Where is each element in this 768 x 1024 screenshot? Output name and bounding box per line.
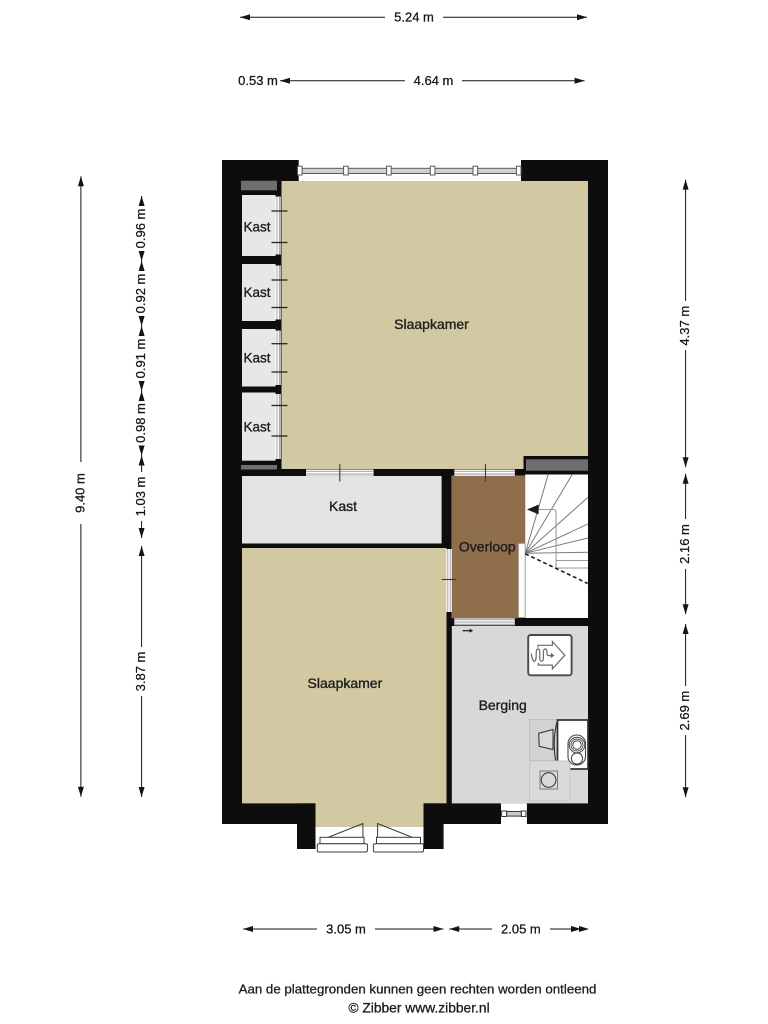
svg-text:3.87 m: 3.87 m bbox=[133, 652, 148, 692]
svg-text:Aan de plattegronden kunnen ge: Aan de plattegronden kunnen geen rechten… bbox=[239, 982, 597, 997]
svg-text:Kast: Kast bbox=[243, 351, 270, 366]
svg-text:0.98 m: 0.98 m bbox=[133, 403, 148, 443]
svg-text:Kast: Kast bbox=[243, 219, 270, 234]
svg-text:Berging: Berging bbox=[479, 697, 527, 713]
svg-text:Kast: Kast bbox=[243, 419, 270, 434]
svg-text:0.53 m: 0.53 m bbox=[238, 73, 278, 88]
svg-text:0.91 m: 0.91 m bbox=[133, 339, 148, 379]
svg-text:© Zibber www.zibber.nl: © Zibber www.zibber.nl bbox=[348, 1000, 489, 1015]
svg-text:2.69 m: 2.69 m bbox=[677, 691, 692, 731]
svg-text:4.64 m: 4.64 m bbox=[414, 73, 454, 88]
svg-text:1.03 m: 1.03 m bbox=[133, 477, 148, 517]
svg-text:Overloop: Overloop bbox=[459, 538, 516, 554]
svg-text:0.96 m: 0.96 m bbox=[133, 209, 148, 249]
svg-text:3.05 m: 3.05 m bbox=[326, 922, 366, 937]
svg-text:Kast: Kast bbox=[329, 498, 357, 514]
svg-text:Kast: Kast bbox=[243, 285, 270, 300]
svg-text:0.92 m: 0.92 m bbox=[133, 274, 148, 314]
svg-text:5.24 m: 5.24 m bbox=[394, 10, 434, 25]
svg-text:Slaapkamer: Slaapkamer bbox=[308, 675, 383, 691]
svg-text:Slaapkamer: Slaapkamer bbox=[394, 316, 469, 332]
svg-text:2.16 m: 2.16 m bbox=[677, 524, 692, 564]
svg-text:2.05 m: 2.05 m bbox=[501, 922, 541, 937]
svg-text:9.40 m: 9.40 m bbox=[72, 473, 87, 513]
svg-text:4.37 m: 4.37 m bbox=[677, 306, 692, 346]
